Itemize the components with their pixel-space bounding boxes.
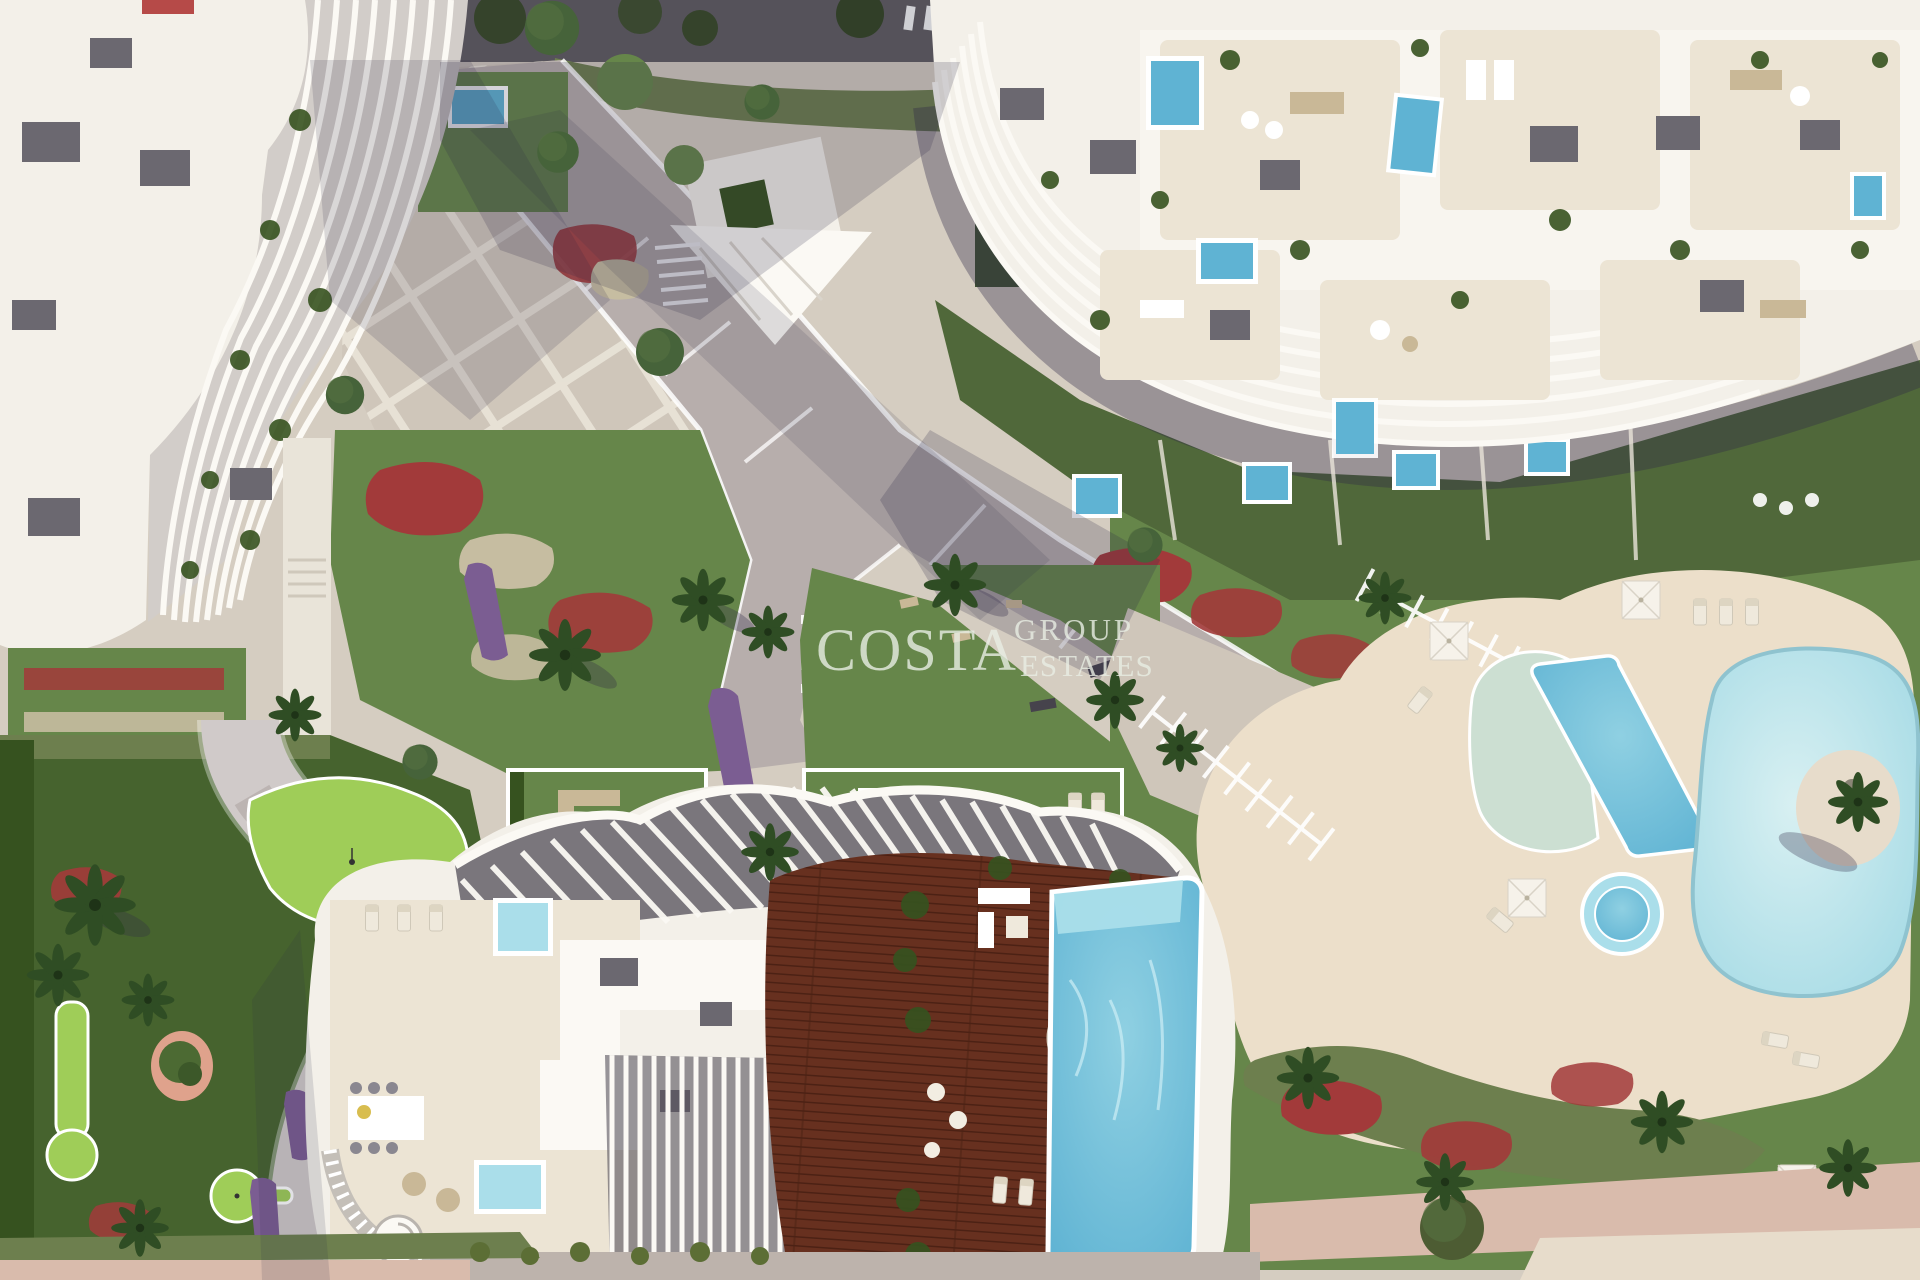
parasol <box>1508 879 1546 917</box>
watermark: COSTA GROUP ESTATES <box>816 612 1154 683</box>
red-awning <box>142 0 194 14</box>
dining-table <box>348 1096 424 1140</box>
watermark-group: GROUP <box>1014 612 1134 647</box>
aerial-render-scene: COSTA GROUP ESTATES <box>0 0 1920 1280</box>
road-north <box>435 0 980 62</box>
watermark-costa: COSTA <box>816 617 1018 683</box>
deck-pool <box>1048 878 1202 1268</box>
large-tree <box>1420 1196 1484 1260</box>
parasol <box>1622 581 1660 619</box>
pink-planter <box>151 1031 213 1101</box>
putting-green-strip <box>47 1002 97 1180</box>
lagoon-pool <box>1693 648 1919 996</box>
street-tree <box>525 1 579 55</box>
round-chair <box>402 1172 426 1196</box>
parasol <box>1430 622 1468 660</box>
south-pavement <box>430 1252 1260 1280</box>
pink-path-southwest <box>0 1260 470 1280</box>
island-palm-tree <box>1828 772 1888 832</box>
terrace-pool-south <box>474 1160 546 1214</box>
watermark-estates: ESTATES <box>1020 648 1154 683</box>
aerial-render-svg: COSTA GROUP ESTATES <box>0 0 1920 1280</box>
terrace-pool-north <box>493 898 553 956</box>
round-chair <box>436 1188 460 1212</box>
